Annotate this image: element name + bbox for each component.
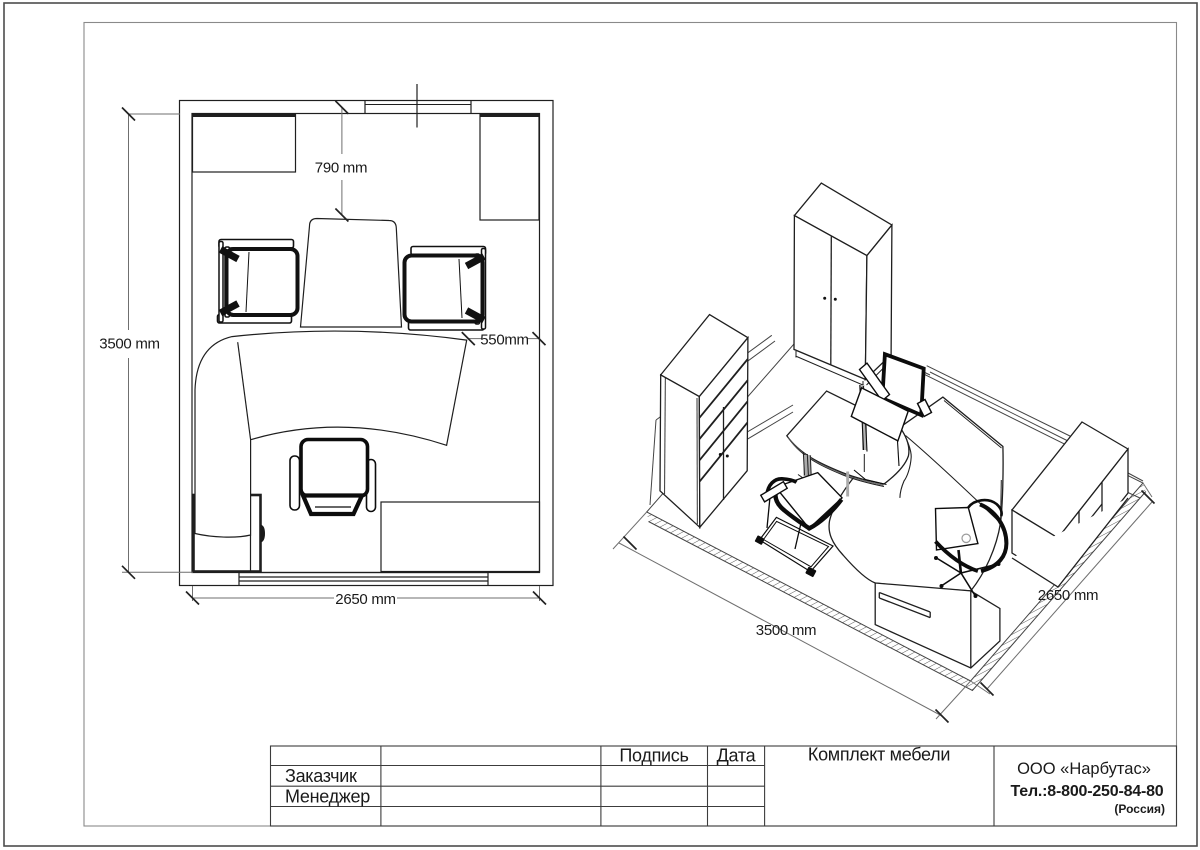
svg-text:Дата: Дата [717,746,757,766]
svg-text:550mm: 550mm [480,332,529,349]
svg-text:Подпись: Подпись [619,746,688,766]
svg-text:(Россия): (Россия) [1114,802,1165,816]
svg-text:Тел.:8-800-250-84-80: Тел.:8-800-250-84-80 [1010,783,1163,800]
svg-text:2650 mm: 2650 mm [335,591,395,608]
svg-text:Комплект мебели: Комплект мебели [808,745,950,765]
svg-text:3500 mm: 3500 mm [99,336,159,353]
svg-text:2650 mm: 2650 mm [1038,587,1098,604]
svg-text:Заказчик: Заказчик [285,766,357,786]
svg-text:ООО «Нарбутас»: ООО «Нарбутас» [1017,760,1151,778]
svg-text:3500 mm: 3500 mm [756,622,816,639]
svg-text:790 mm: 790 mm [315,160,367,177]
svg-text:Менеджер: Менеджер [285,787,370,807]
